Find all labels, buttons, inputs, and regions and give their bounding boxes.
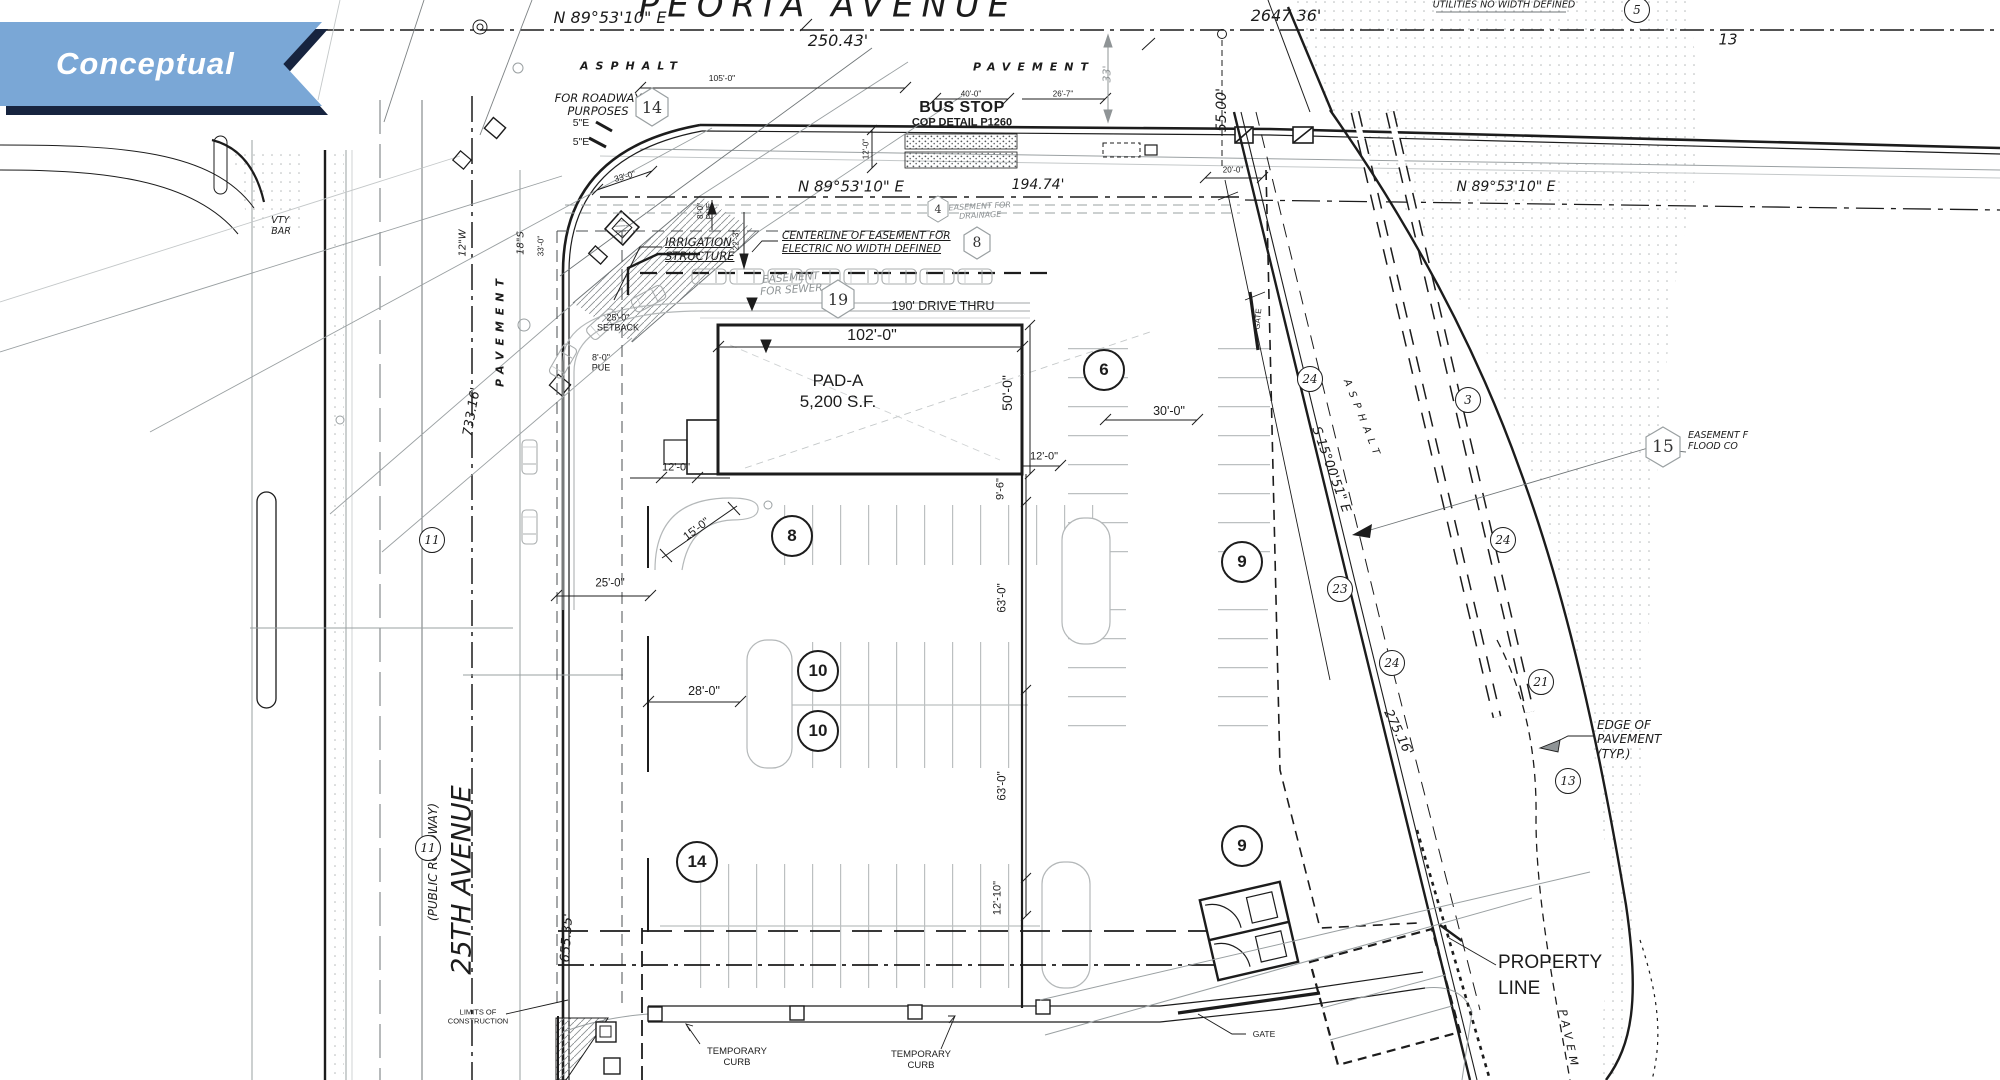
dim-setback-25: 25'-0" SETBACK [597, 313, 639, 334]
label-centerline-easement: CENTERLINE OF EASEMENT FOR ELECTRIC NO W… [782, 230, 951, 255]
dim-33v: 33'-0" [536, 236, 545, 256]
keynote-circle-24c: 24 [1379, 650, 1405, 676]
keynote-circle-10a: 10 [797, 650, 839, 692]
distance-250: 250.43' [808, 32, 868, 50]
stipple-left-road [327, 148, 344, 1080]
dim-12-bldg: 12'-0" [662, 462, 690, 475]
dim-30: 30'-0" [1153, 404, 1185, 418]
label-5e-1: 5"E [573, 117, 590, 129]
street-peoria: PEORIA AVENUE [639, 0, 1018, 26]
label-gate-top: GATE [1253, 308, 1264, 330]
keynote-hex-8: 8 [962, 226, 992, 260]
conceptual-banner: Conceptual [0, 22, 330, 110]
label-5e-2: 5"E [573, 136, 590, 148]
dim-12w: 12"W [457, 229, 469, 256]
keynote-circle-11b: 11 [415, 835, 441, 861]
dim-55: 55.00' [1214, 88, 1230, 132]
label-vty-bar: VTY BAR [271, 216, 291, 238]
street-25th-avenue: 25TH AVENUE [446, 785, 477, 974]
distance-13: 13 [1718, 31, 1737, 48]
keynote-circle-6: 6 [1083, 349, 1125, 391]
keynote-circle-8: 8 [771, 515, 813, 557]
dim-63-top: 63'-0" [996, 583, 1009, 612]
dim-12-right: 12'-0" [1030, 451, 1058, 464]
keynote-circle-13: 13 [1555, 768, 1581, 794]
dim-12-10: 12'-10" [992, 881, 1005, 915]
keynote-hex-15: 15 [1643, 426, 1683, 468]
keynote-circle-11a: 11 [419, 527, 445, 553]
site-plan-linework [0, 0, 2000, 1080]
dim-8-pue-top: 8'-0" PUE [696, 203, 714, 219]
dim-20: 20'-0" [1223, 165, 1243, 174]
keynote-hex-4: 4 [926, 195, 950, 223]
keynote-circle-10b: 10 [797, 710, 839, 752]
bearing-mid: N 89°53'10" E [798, 178, 904, 195]
dim-26-7: 26'-7" [1053, 89, 1073, 98]
label-irrigation: IRRIGATION STRUCTURE [665, 236, 734, 264]
label-gate-bottom: GATE [1253, 1030, 1276, 1040]
distance-2647: 2647.36' [1251, 7, 1322, 25]
label-cop-detail: COP DETAIL P1260 [912, 117, 1012, 130]
label-pavement-top: PAVEMENT [973, 62, 1095, 75]
keynote-circle-24a: 24 [1297, 366, 1323, 392]
dim-63-bottom: 63'-0" [996, 771, 1009, 800]
dim-102: 102'-0" [847, 327, 897, 345]
keynote-circle-21: 21 [1528, 669, 1554, 695]
dim-28: 28'-0" [688, 684, 720, 698]
dim-12-bus: 12'-0" [861, 139, 870, 159]
label-easement-sewer: EASEMENT FOR SEWER [759, 270, 823, 298]
label-bus-stop: BUS STOP [919, 99, 1005, 117]
site-plan: PEORIA AVENUE N 89°53'10" E 250.43' 2647… [0, 0, 2000, 1080]
parking-stalls [660, 347, 1270, 988]
bus-stop-pads [905, 134, 1017, 168]
dim-18s: 18"S [515, 231, 527, 255]
dim-105: 105'-0" [709, 74, 735, 84]
distance-194: 194.74' [1012, 177, 1065, 193]
dim-9-6: 9'-6" [995, 478, 1008, 500]
bearing-peoria-left: N 89°53'10" E [553, 9, 666, 27]
bearing-right: N 89°53'10" E [1457, 179, 1556, 195]
label-asphalt-top: ASPHALT [580, 61, 684, 74]
label-limits: LIMITS OF CONSTRUCTION [448, 1008, 508, 1025]
label-easement-flood: EASEMENT F FLOOD CO [1688, 430, 1748, 453]
dim-25: 25'-0" [595, 577, 624, 590]
banner-label: Conceptual [0, 46, 235, 82]
keynote-circle-3: 3 [1455, 387, 1481, 413]
label-utilities: UTILITIES NO WIDTH DEFINED [1433, 1, 1575, 12]
label-temp-curb-2: TEMPORARY CURB [891, 1050, 951, 1072]
label-pad-a: PAD-A 5,200 S.F. [800, 370, 877, 413]
label-easement-drainage: EASEMENT FOR DRAINAGE [948, 200, 1011, 222]
label-property-line: PROPERTY LINE [1498, 950, 1602, 1001]
keynote-circle-9b: 9 [1221, 825, 1263, 867]
label-for-roadway: FOR ROADWAY PURPOSES [555, 92, 642, 118]
label-drive-thru: 190' DRIVE THRU [892, 299, 995, 313]
keynote-circle-23: 23 [1327, 576, 1353, 602]
street-public-roadway: (PUBLIC ROADWAY) [427, 803, 441, 921]
label-pavement-left: PAVEMENT [495, 273, 508, 387]
dim-33: 33' [1102, 65, 1115, 82]
dim-40: 40'-0" [961, 89, 981, 98]
keynote-circle-14: 14 [676, 841, 718, 883]
label-edge-pavement: EDGE OF PAVEMENT (TYP.) [1597, 718, 1661, 761]
dim-8-pue-mid: 8'-0" PUE [592, 353, 611, 374]
keynote-circle-9a: 9 [1221, 541, 1263, 583]
keynote-hex-19: 19 [820, 279, 856, 319]
dim-50: 50'-0" [999, 375, 1015, 411]
keynote-hex-14: 14 [634, 87, 670, 127]
keynote-circle-24b: 24 [1490, 527, 1516, 553]
label-temp-curb-1: TEMPORARY CURB [707, 1047, 767, 1069]
